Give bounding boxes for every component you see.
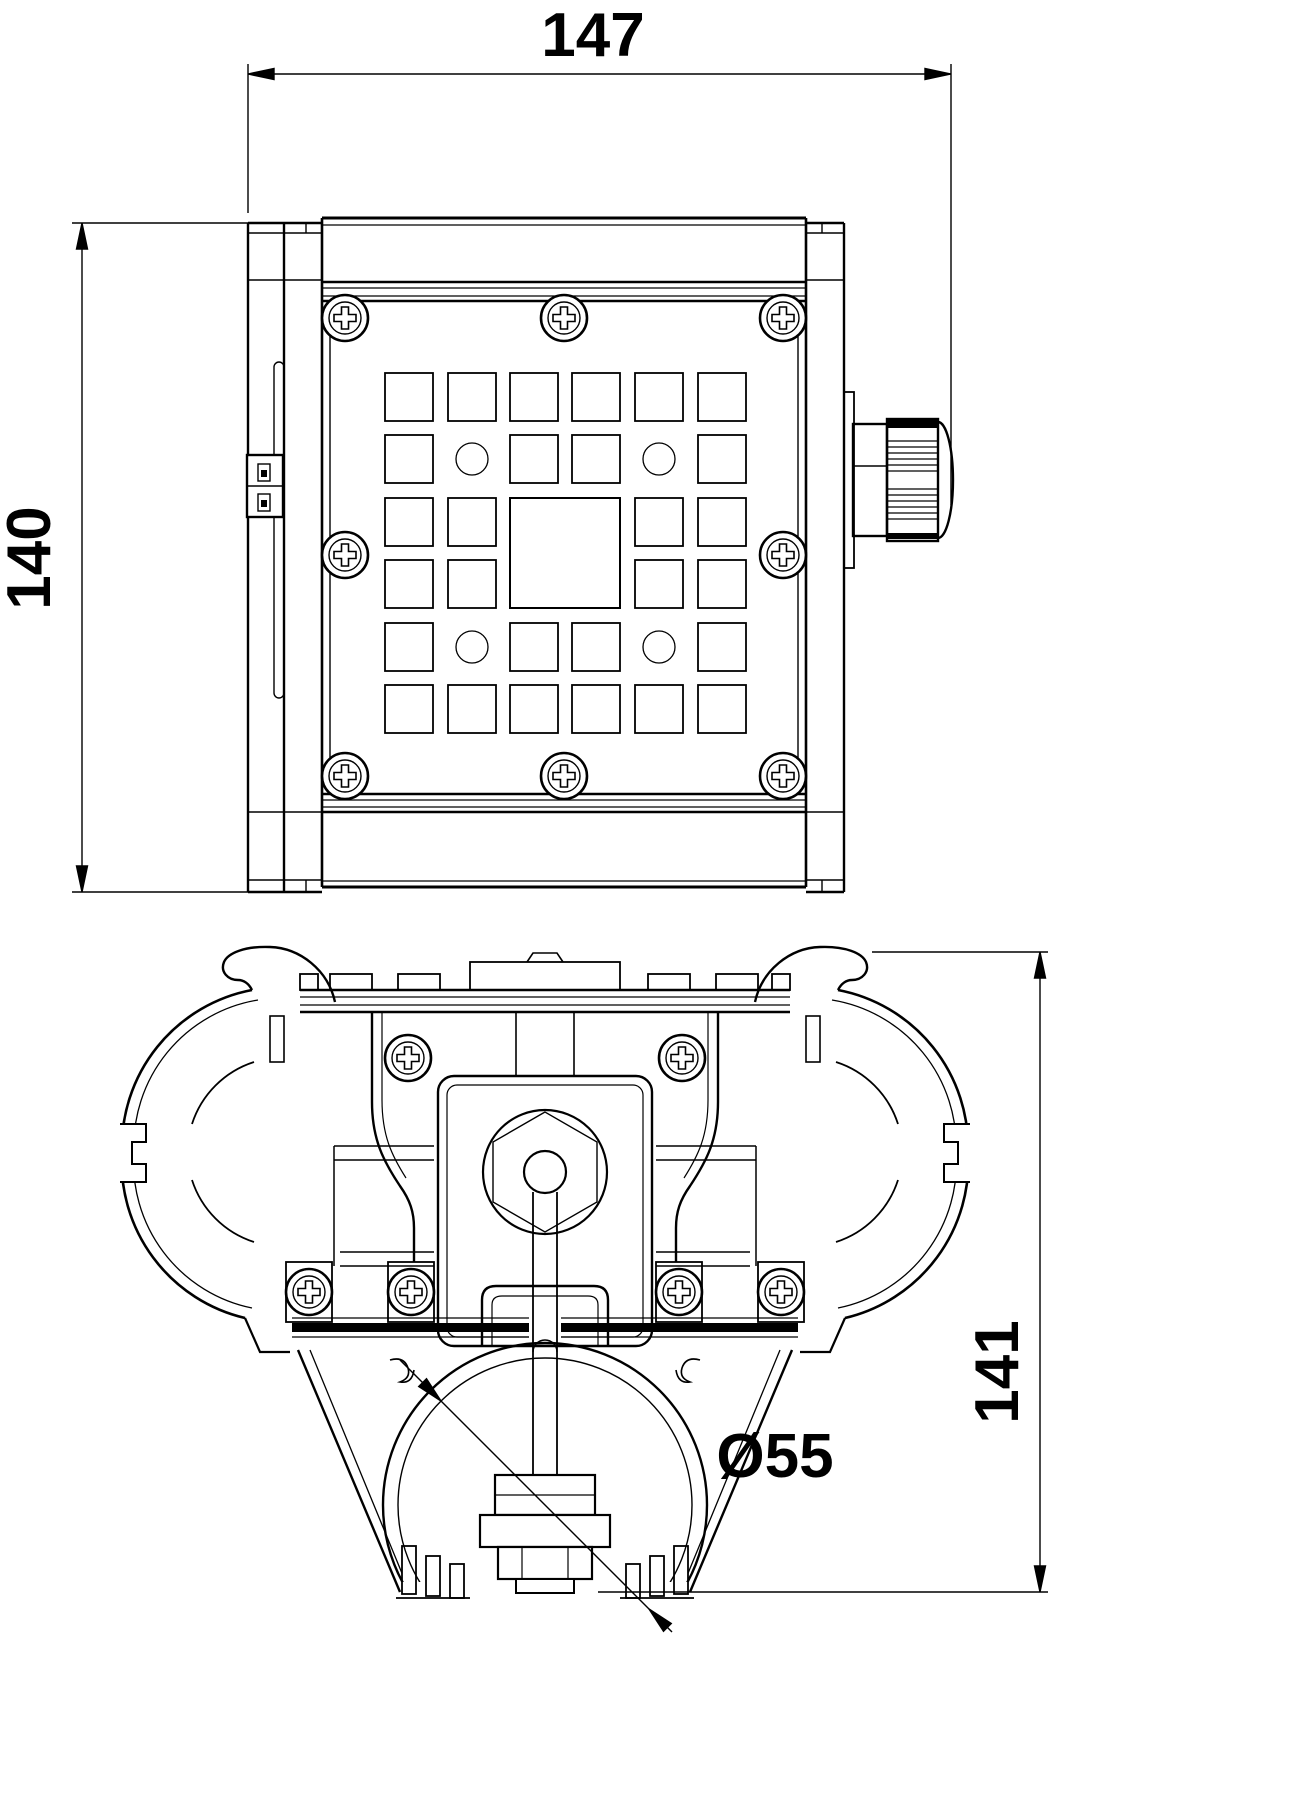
dim-diameter-label: Ø55: [716, 1422, 833, 1491]
phillips-screw-icon: [286, 1269, 332, 1315]
phillips-screw-icon: [758, 1269, 804, 1315]
front-face-screws: [322, 295, 806, 799]
phillips-screw-icon: [760, 753, 806, 799]
phillips-screw-icon: [659, 1035, 705, 1081]
phillips-screw-icon: [760, 295, 806, 341]
front-view: [247, 218, 953, 892]
cable-gland: [844, 392, 953, 568]
dim-width: [248, 64, 951, 505]
left-arm: [248, 218, 322, 892]
right-arm: [806, 218, 844, 892]
dim-height-side-label: 141: [963, 1320, 1032, 1423]
phillips-screw-icon: [322, 753, 368, 799]
mounting-rail: [300, 953, 790, 1012]
bottom-clamp: [480, 1475, 610, 1593]
phillips-screw-icon: [541, 295, 587, 341]
phillips-screw-icon: [760, 532, 806, 578]
side-connector: [247, 455, 283, 517]
side-view: [114, 947, 976, 1667]
phillips-screw-icon: [322, 532, 368, 578]
phillips-screw-icon: [388, 1269, 434, 1315]
phillips-screw-icon: [385, 1035, 431, 1081]
cad-drawing: 147 140 141 Ø55: [0, 0, 1303, 1800]
dim-height-front-label: 140: [0, 506, 64, 609]
pivot-nut: [483, 1110, 607, 1234]
dim-height-front: [72, 223, 286, 892]
pivot-hole: [524, 1151, 566, 1193]
center-led-window: [510, 498, 620, 608]
phillips-screw-icon: [541, 753, 587, 799]
phillips-screw-icon: [656, 1269, 702, 1315]
rail-center-tab: [470, 962, 620, 990]
led-grid: [385, 373, 746, 733]
retainer-hook: [676, 1359, 700, 1382]
heatsink-wing: [656, 947, 976, 1352]
drawing-sheet: 147 140 141 Ø55: [0, 0, 1303, 1800]
dim-width-label: 147: [541, 1, 644, 70]
swivel-block: [438, 1012, 652, 1346]
fixing-bolt: [498, 1547, 592, 1593]
phillips-screw-icon: [322, 295, 368, 341]
